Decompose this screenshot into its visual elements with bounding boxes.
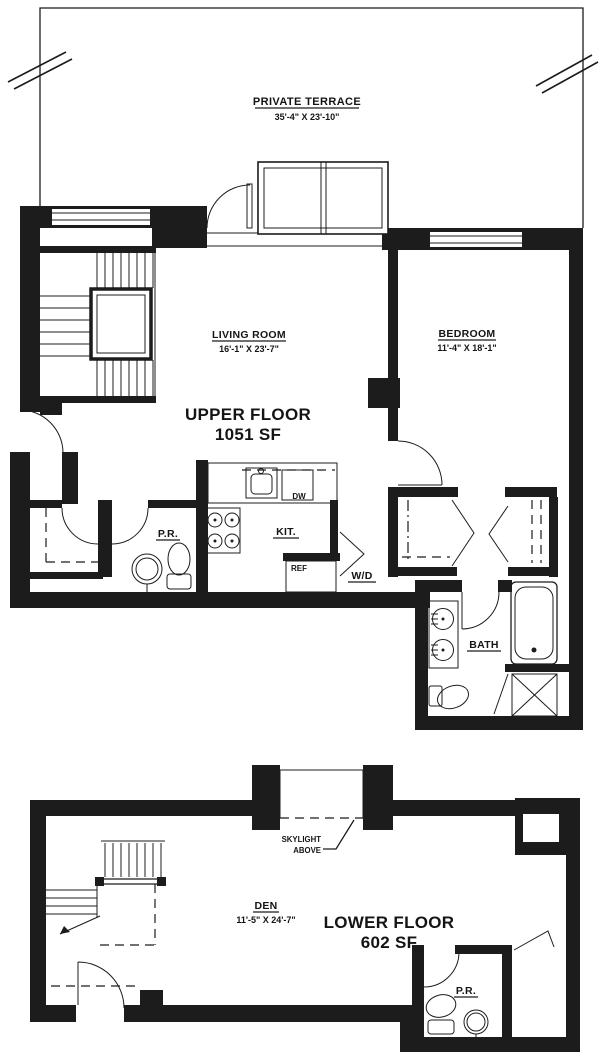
sink-lower-icon xyxy=(464,1010,488,1041)
living-room-dims: 16'-1" X 23'-7" xyxy=(219,344,279,354)
bath-toilet-icon xyxy=(429,681,472,713)
bedroom-dims: 11'-4" X 18'-1" xyxy=(437,343,496,353)
skylight-leader-line xyxy=(323,820,354,849)
lower-floor-area: 602 SF xyxy=(361,933,418,952)
bedroom-door xyxy=(398,441,442,485)
vanity-counter xyxy=(429,601,458,668)
upper-floor-title: UPPER FLOOR xyxy=(185,405,311,424)
washer-dryer-label: W/D xyxy=(351,570,372,582)
terrace-dims: 35'-4" X 23'-10" xyxy=(275,112,340,122)
bedroom-closet-right xyxy=(489,500,541,563)
powder-room-lower-label: P.R. xyxy=(456,985,476,997)
powder-room-lower-door-arc xyxy=(424,952,459,987)
bathtub-icon xyxy=(511,582,557,664)
upper-floor-area: 1051 SF xyxy=(215,425,281,444)
floor-plan-svg: PRIVATE TERRACE 35'-4" X 23'-10" LIVING … xyxy=(0,0,600,1061)
dishwasher-label: DW xyxy=(292,492,306,501)
stairs-lower xyxy=(36,841,166,986)
kitchen-label: KIT. xyxy=(276,526,296,538)
terrace-break-mark-right xyxy=(536,55,598,93)
stair-treads-lower-top xyxy=(105,843,161,877)
bedroom-window xyxy=(430,232,522,247)
stair-treads-lower-left xyxy=(46,884,97,918)
kitchen xyxy=(206,463,337,592)
terrace-glass-enclosure xyxy=(258,162,388,234)
powder-room-upper xyxy=(132,543,191,592)
terrace-label: PRIVATE TERRACE xyxy=(253,96,361,108)
skylight-note-line1: SKYLIGHT xyxy=(282,835,322,844)
kitchen-sink-icon xyxy=(246,468,277,498)
powder-room-upper-label: P.R. xyxy=(158,528,178,540)
stair-treads-left xyxy=(40,296,90,356)
den-dims: 11'-5" X 24'-7" xyxy=(236,915,295,925)
entry-door-arc xyxy=(20,410,63,453)
lower-entry-door xyxy=(78,962,124,1008)
foyer-closet-door-arc xyxy=(62,508,98,544)
lower-closet-door xyxy=(514,931,554,950)
stair-treads-bottom xyxy=(97,360,153,396)
stove-icon xyxy=(206,508,240,553)
den-label: DEN xyxy=(254,900,277,912)
stair-direction-arrow xyxy=(60,916,100,934)
bedroom-closet-left xyxy=(402,500,474,566)
vanity-sink-icon xyxy=(431,609,454,661)
lower-floor-walls xyxy=(30,765,580,1052)
powder-room-door-arc xyxy=(112,508,148,544)
living-room-label: LIVING ROOM xyxy=(212,329,286,341)
refrigerator-label: REF xyxy=(291,564,307,573)
terrace-door xyxy=(207,184,252,228)
stairs-upper xyxy=(40,220,156,415)
shower-closet xyxy=(494,674,557,716)
living-room-window xyxy=(52,209,150,225)
skylight-note-line2: ABOVE xyxy=(293,846,321,855)
bedroom-label: BEDROOM xyxy=(439,328,496,340)
stair-treads-top xyxy=(97,253,153,288)
bath-door xyxy=(462,592,499,629)
foyer-closet xyxy=(46,508,98,562)
toilet-icon xyxy=(167,543,191,589)
bath-label: BATH xyxy=(469,639,499,651)
toilet-lower-icon xyxy=(424,991,459,1034)
lower-floor-title: LOWER FLOOR xyxy=(324,913,455,932)
sink-icon xyxy=(132,554,162,592)
lower-floor-labels: SKYLIGHT ABOVE DEN 11'-5" X 24'-7" LOWER… xyxy=(236,835,478,997)
floor-plan-image: PRIVATE TERRACE 35'-4" X 23'-10" LIVING … xyxy=(0,0,600,1061)
stairwell-void xyxy=(91,289,151,359)
